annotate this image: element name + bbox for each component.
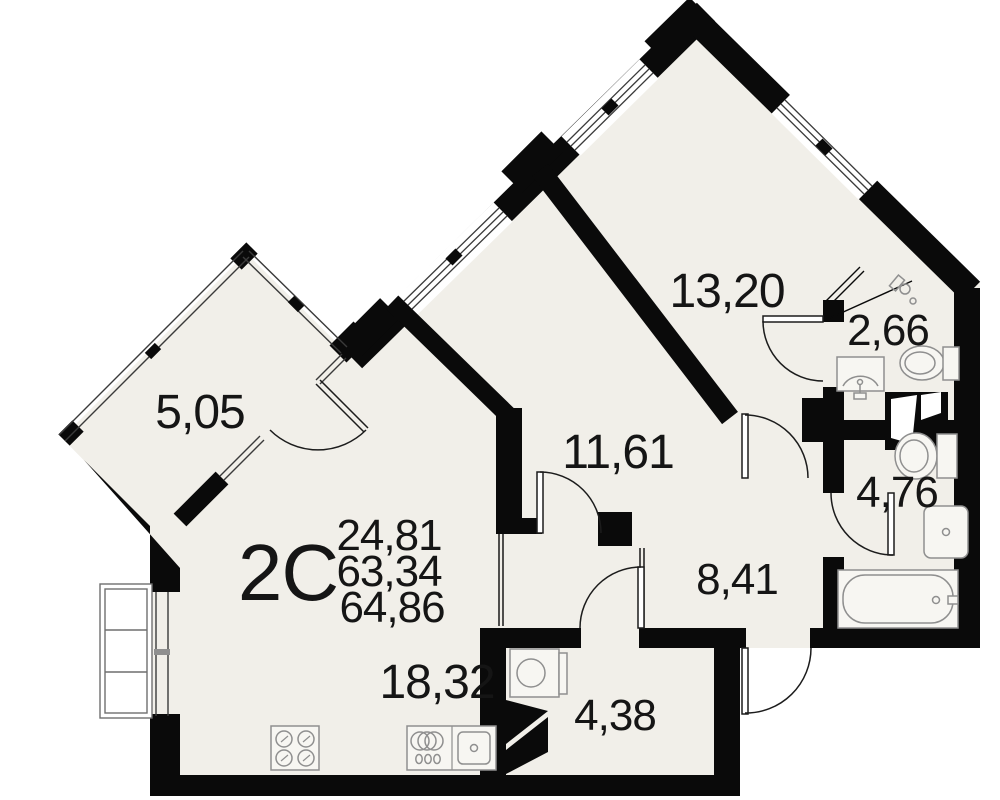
room-label-room-middle: 11,61 xyxy=(562,426,674,479)
kitchen-sink-icon xyxy=(407,726,496,770)
door-hallway-leaf xyxy=(742,414,748,478)
wall-left-lower xyxy=(150,714,180,776)
wall-b2-block xyxy=(802,398,826,442)
stove-icon xyxy=(271,726,319,770)
window-kitchen-left-tick xyxy=(154,649,170,655)
window-ne-tick xyxy=(819,142,829,152)
door-entrance-arc xyxy=(745,648,811,713)
wall-bottom-right xyxy=(810,628,980,648)
apartment-summary: 2С 24,81 63,34 64,86 xyxy=(238,511,445,632)
room-label-kitchen-living: 18,32 xyxy=(379,656,494,709)
door-entrance-leaf xyxy=(742,648,748,714)
bathtub-icon xyxy=(838,570,958,628)
french-balcony-inner xyxy=(105,589,147,713)
room-label-bedroom: 13,20 xyxy=(669,265,784,318)
floor-plan-canvas: 5,05 13,20 2,66 11,61 4,76 8,41 4,38 18,… xyxy=(0,0,1000,800)
washing-machine-icon xyxy=(510,649,567,697)
apartment-total-area: 64,86 xyxy=(339,583,444,632)
room-label-wc-small: 2,66 xyxy=(847,306,929,355)
window-nw-2-tick xyxy=(605,102,615,112)
door-storage-leaf xyxy=(638,567,644,628)
wall-bottom-main xyxy=(150,775,740,796)
french-balcony xyxy=(100,584,152,718)
window-nw-1-tick xyxy=(449,252,459,262)
room-label-hallway: 8,41 xyxy=(696,555,778,604)
wall-a-cap xyxy=(496,518,542,534)
floor-plan-page: 5,05 13,20 2,66 11,61 4,76 8,41 4,38 18,… xyxy=(0,0,1000,800)
wall-wc-bath-left xyxy=(840,420,888,440)
wall-823-upper xyxy=(823,300,844,322)
door-room-middle-leaf xyxy=(537,472,543,533)
wall-b-endcap xyxy=(598,512,632,546)
door-entrance xyxy=(742,648,811,714)
wall-storage-right xyxy=(714,645,740,777)
apartment-type-label: 2С xyxy=(238,528,338,617)
room-label-bathroom: 4,76 xyxy=(856,468,938,517)
wall-a-vertical xyxy=(496,408,522,530)
room-label-storage: 4,38 xyxy=(574,691,656,740)
room-label-balcony: 5,05 xyxy=(155,386,244,439)
